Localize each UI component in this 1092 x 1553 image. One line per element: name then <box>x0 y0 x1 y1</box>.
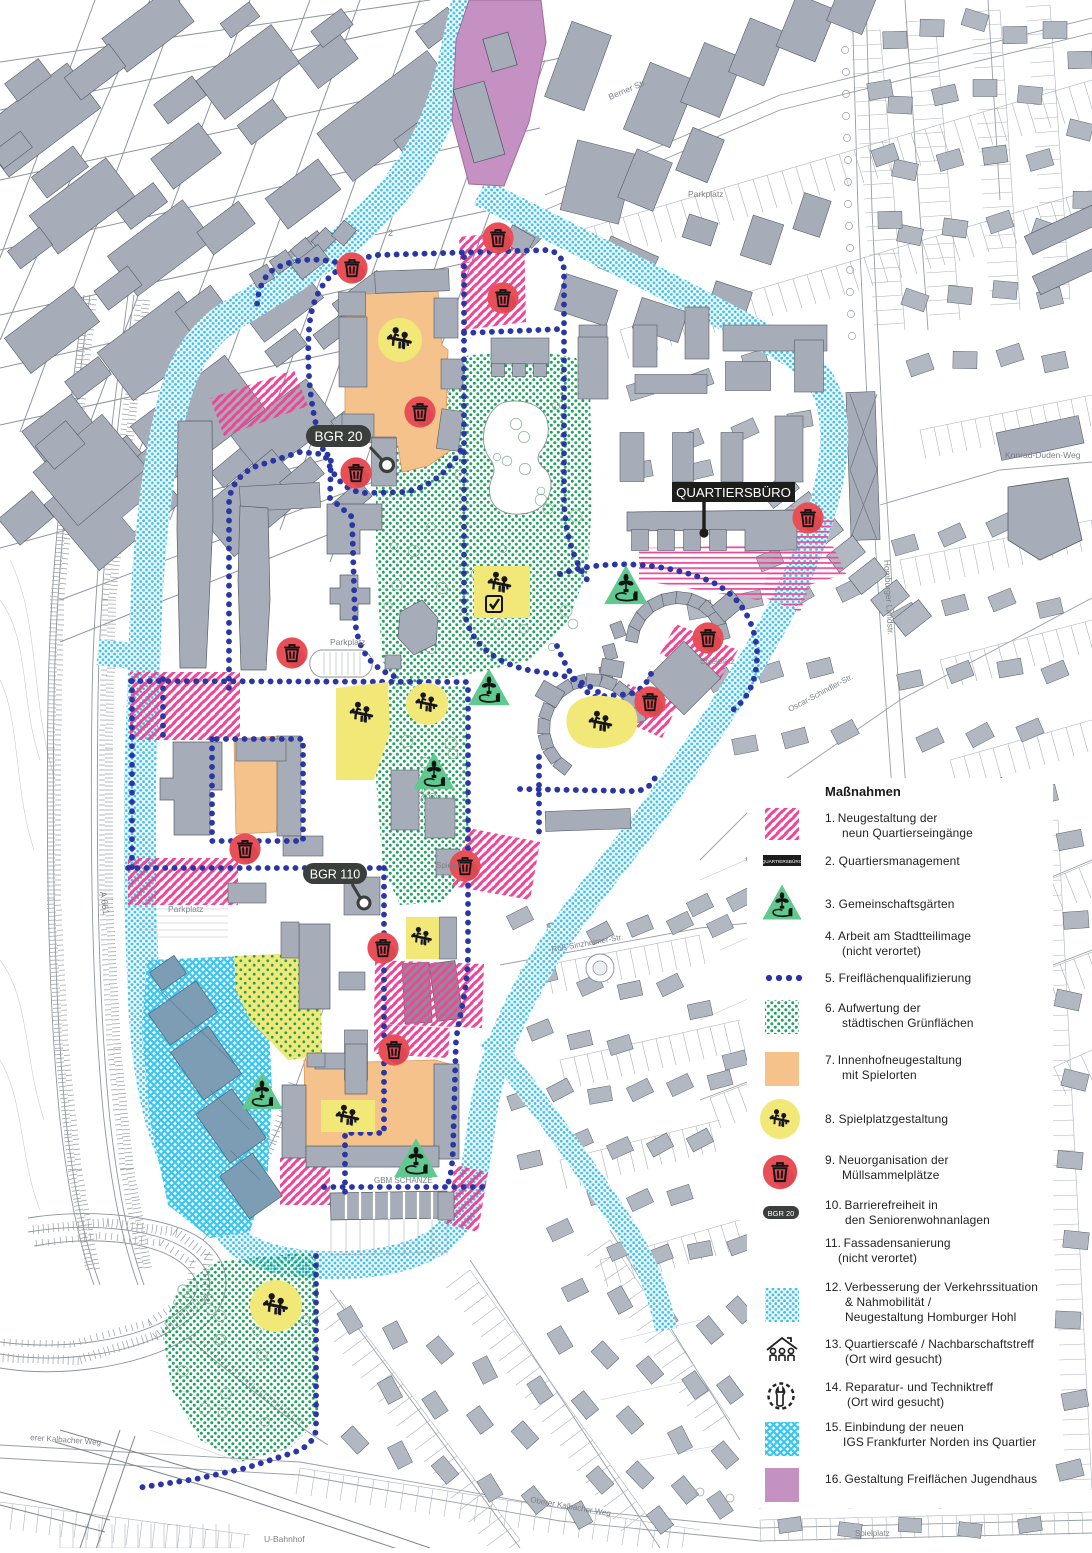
svg-text:6. Aufwertung der: 6. Aufwertung der <box>825 1001 921 1015</box>
svg-text:1. Neugestaltung der: 1. Neugestaltung der <box>825 811 937 825</box>
svg-text:QUARTIERSBÜRO: QUARTIERSBÜRO <box>676 485 791 500</box>
svg-text:Müllsammelplätze: Müllsammelplätze <box>842 1168 940 1182</box>
svg-text:BGR 20: BGR 20 <box>768 1209 795 1218</box>
svg-text:11. Fassadensanierung: 11. Fassadensanierung <box>825 1236 951 1250</box>
svg-text:5. Freiflächenqualifizierung: 5. Freiflächenqualifizierung <box>825 971 971 985</box>
svg-text:U-Bahnhof: U-Bahnhof <box>264 1534 305 1544</box>
svg-text:10. Barrierefreiheit in: 10. Barrierefreiheit in <box>825 1198 938 1212</box>
svg-text:städtischen Grünflächen: städtischen Grünflächen <box>842 1016 974 1030</box>
svg-text:Maßnahmen: Maßnahmen <box>825 784 901 799</box>
svg-text:9. Neuorganisation der: 9. Neuorganisation der <box>825 1153 949 1167</box>
svg-text:GBM SCHANZE: GBM SCHANZE <box>374 1176 433 1185</box>
svg-text:15. Einbindung der neuen: 15. Einbindung der neuen <box>825 1420 964 1434</box>
svg-text:den Seniorenwohnanlagen: den Seniorenwohnanlagen <box>845 1213 990 1227</box>
svg-text:2: 2 <box>388 228 393 238</box>
svg-text:(nicht verortet): (nicht verortet) <box>842 944 921 958</box>
svg-text:14. Reparatur- und Techniktre: 14. Reparatur- und Techniktreff <box>825 1380 994 1394</box>
svg-text:(Ort wird gesucht): (Ort wird gesucht) <box>847 1395 944 1409</box>
svg-text:Spielplatz: Spielplatz <box>700 657 735 666</box>
svg-text:(nicht verortet): (nicht verortet) <box>838 1251 917 1265</box>
svg-text:8. Spielplatzgestaltung: 8. Spielplatzgestaltung <box>825 1112 948 1126</box>
svg-text:4. Arbeit am Stadtteilimage: 4. Arbeit am Stadtteilimage <box>825 929 971 943</box>
svg-text:7. Innenhofneugestaltung: 7. Innenhofneugestaltung <box>825 1053 962 1067</box>
svg-text:mit Spielorten: mit Spielorten <box>842 1068 917 1082</box>
svg-text:BGR 20: BGR 20 <box>314 429 362 444</box>
svg-text:Parkplatz: Parkplatz <box>688 189 723 199</box>
svg-text:13. Quartierscafé / Nachbarsc: 13. Quartierscafé / Nachbarschaftstreff <box>825 1337 1034 1351</box>
svg-text:IGS Frankfurter Norden ins Qua: IGS Frankfurter Norden ins Quartier <box>843 1435 1036 1449</box>
svg-text:12. Verbesserung der Verkehrss: 12. Verbesserung der Verkehrssituation <box>825 1280 1038 1294</box>
svg-text:QUARTIERSBÜRO: QUARTIERSBÜRO <box>762 858 803 864</box>
svg-text:Neugestaltung Homburger Hohl: Neugestaltung Homburger Hohl <box>845 1310 1016 1324</box>
svg-text:Parkplatz: Parkplatz <box>330 637 365 647</box>
svg-text:2. Quartiersmanagement: 2. Quartiersmanagement <box>825 854 960 868</box>
svg-text:16. Gestaltung Freiflächen Jug: 16. Gestaltung Freiflächen Jugendhaus <box>825 1472 1037 1486</box>
svg-text:Spielplatz: Spielplatz <box>855 1529 890 1538</box>
svg-text:Spielpl.: Spielpl. <box>436 861 462 870</box>
svg-text:neun Quartierseingänge: neun Quartierseingänge <box>842 826 973 840</box>
svg-text:Konrad-Duden-Weg: Konrad-Duden-Weg <box>1005 450 1081 460</box>
svg-text:& Nahmobilität /: & Nahmobilität / <box>845 1295 932 1309</box>
svg-text:BGR 110: BGR 110 <box>310 868 361 882</box>
svg-text:3. Gemeinschaftsgärten: 3. Gemeinschaftsgärten <box>825 897 955 911</box>
svg-text:(Ort wird gesucht): (Ort wird gesucht) <box>845 1352 942 1366</box>
